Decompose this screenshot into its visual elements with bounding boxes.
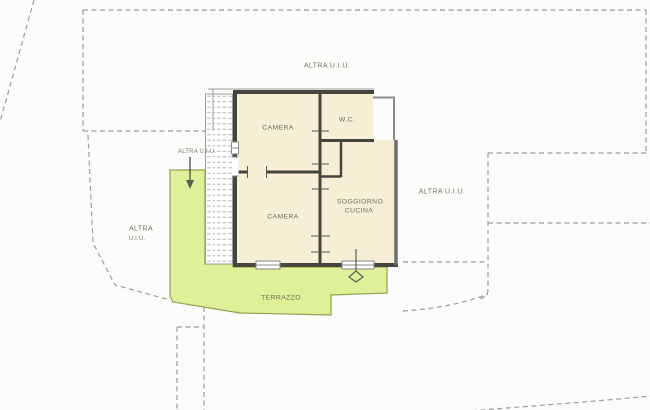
- left-wall-door-opening: [232, 157, 239, 176]
- floor-plan-drawing: [0, 0, 650, 410]
- label-room-soggiorno-line1: SOGGIORNO: [337, 200, 383, 207]
- label-room-wc: W.C.: [339, 118, 355, 125]
- building-interior: [237, 92, 395, 265]
- floor-plan-canvas: ALTRA U.I.U. ALTRA U.I.U. ALTRA U.I.U. A…: [0, 0, 650, 410]
- stairs: [206, 94, 233, 264]
- label-altra-left-line1: ALTRA: [129, 226, 153, 233]
- label-room-camera-bottom: CAMERA: [267, 215, 298, 222]
- label-room-camera-top: CAMERA: [262, 126, 293, 133]
- label-altra-uiu-right: ALTRA U.I.U.: [419, 189, 465, 196]
- label-room-soggiorno-line2: CUCINA: [345, 209, 373, 216]
- label-altra-left-line2: U.I.U.: [129, 236, 146, 242]
- label-terrace: TERRAZZO: [261, 296, 301, 303]
- label-altra-uiu-left-small: ALTRA U.I.U.: [178, 149, 216, 155]
- bottom-wall-window-left: [256, 261, 280, 269]
- bottom-wall-window-right: [342, 261, 374, 269]
- left-wall-window: [232, 142, 239, 154]
- label-altra-uiu-top: ALTRA U.I.U.: [304, 63, 350, 70]
